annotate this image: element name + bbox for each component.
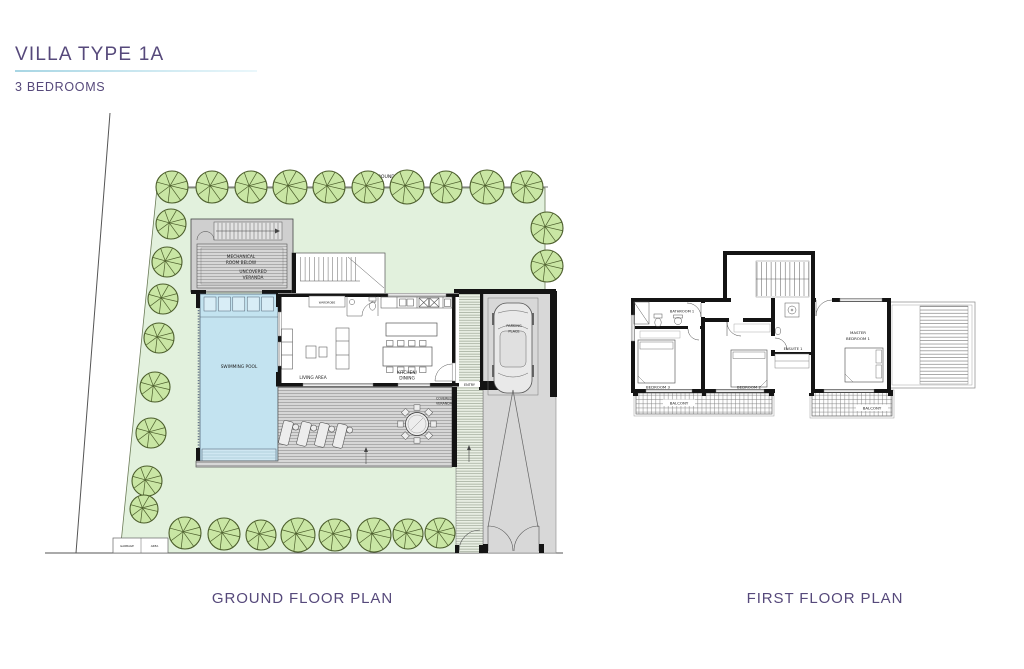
stairwell (723, 251, 815, 300)
balcony-left-label: BALCONY (670, 401, 689, 406)
covered-veranda-label: COVERED (436, 397, 453, 401)
balcony-left: BALCONY (633, 390, 774, 416)
interior-staircase (292, 253, 385, 295)
master-bedroom-label2: BEDROOM 1 (846, 336, 871, 341)
tree-icon (140, 372, 170, 402)
uncovered-veranda-label2: VERANDA (243, 275, 264, 281)
wall (550, 291, 557, 397)
tree-icon (357, 518, 391, 552)
garbage-label: GARBAGE (120, 544, 134, 548)
tree-icon (156, 171, 188, 203)
garbage-label2: AREA (151, 544, 159, 548)
tree-icon (273, 170, 307, 204)
tree-icon (169, 517, 201, 549)
bedroom-3-label: BEDROOM 3 (646, 385, 671, 390)
kitchen-island (386, 323, 437, 336)
tree-icon (531, 212, 563, 244)
uncovered-veranda-label: UNCOVERED (239, 269, 267, 275)
tree-icon (470, 170, 504, 204)
tree-icon (208, 518, 240, 550)
page-title: VILLA TYPE 1A (15, 44, 164, 66)
tree-icon (196, 171, 228, 203)
tree-icon (352, 171, 384, 203)
tree-icon (152, 247, 182, 277)
tree-icon (511, 171, 543, 203)
ground-floor-plan: PLOT BOUNDARY LINE MECHANICAL ROOM BELOW… (40, 110, 565, 565)
tree-icon (425, 518, 455, 548)
walk-strip (456, 290, 483, 553)
tree-icon (156, 209, 186, 239)
swimming-pool: SWIMMING POOL (196, 293, 280, 462)
parking-place-label: PARKING (506, 324, 522, 328)
tree-icon (281, 518, 315, 552)
balcony-right-label: BALCONY (863, 406, 882, 411)
tree-icon (136, 418, 166, 448)
bathroom-1-label: BATHROOM 1 (670, 310, 694, 314)
wall (454, 289, 556, 294)
tree-icon (130, 495, 158, 523)
car (492, 303, 534, 393)
wall (480, 293, 483, 390)
mechanical-room-label: MECHANICAL (227, 254, 256, 260)
tree-icon (531, 250, 563, 282)
uncovered-veranda: MECHANICAL ROOM BELOW UNCOVERED VERANDA (191, 219, 293, 294)
ensuite-1-label: ENSUITE 1 (784, 347, 803, 351)
garbage-area: GARBAGE AREA (113, 538, 168, 553)
tree-icon (148, 284, 178, 314)
first-floor-caption: FIRST FLOOR PLAN (640, 590, 1010, 607)
tree-icon (132, 466, 162, 496)
page-subtitle: 3 BEDROOMS (15, 80, 105, 94)
living-area-label: LIVING AREA (299, 375, 326, 381)
tree-icon (393, 519, 423, 549)
tree-icon (430, 171, 462, 203)
tree-icon (390, 170, 424, 204)
bedroom-2-label: BEDROOM 2 (737, 385, 762, 390)
tree-icon (319, 519, 351, 551)
balcony-right: BALCONY (809, 390, 894, 418)
master-bedroom-label: MASTER (850, 330, 866, 335)
roof-terrace (889, 302, 975, 388)
kitchen-counter (381, 297, 452, 308)
mechanical-room-label2: ROOM BELOW (226, 260, 257, 266)
tree-icon (235, 171, 267, 203)
ground-floor-caption: GROUND FLOOR PLAN (40, 590, 565, 607)
kitchen-dining-label2: DINING (399, 376, 415, 382)
title-underline (15, 70, 257, 72)
swimming-pool-label: SWIMMING POOL (221, 364, 258, 370)
entry-label: ENTRY (464, 383, 476, 387)
wardrobe-label: WARDROBE (319, 301, 336, 305)
first-floor-plan: BALCONY BALCONY (625, 245, 995, 430)
tree-icon (144, 323, 174, 353)
tree-icon (313, 171, 345, 203)
covered-veranda-label2: VERANDA (436, 402, 453, 406)
tree-icon (246, 520, 276, 550)
parking-place-label2: PLACE (508, 330, 519, 334)
kitchen-dining-label: KITCHEN/ (397, 370, 418, 376)
